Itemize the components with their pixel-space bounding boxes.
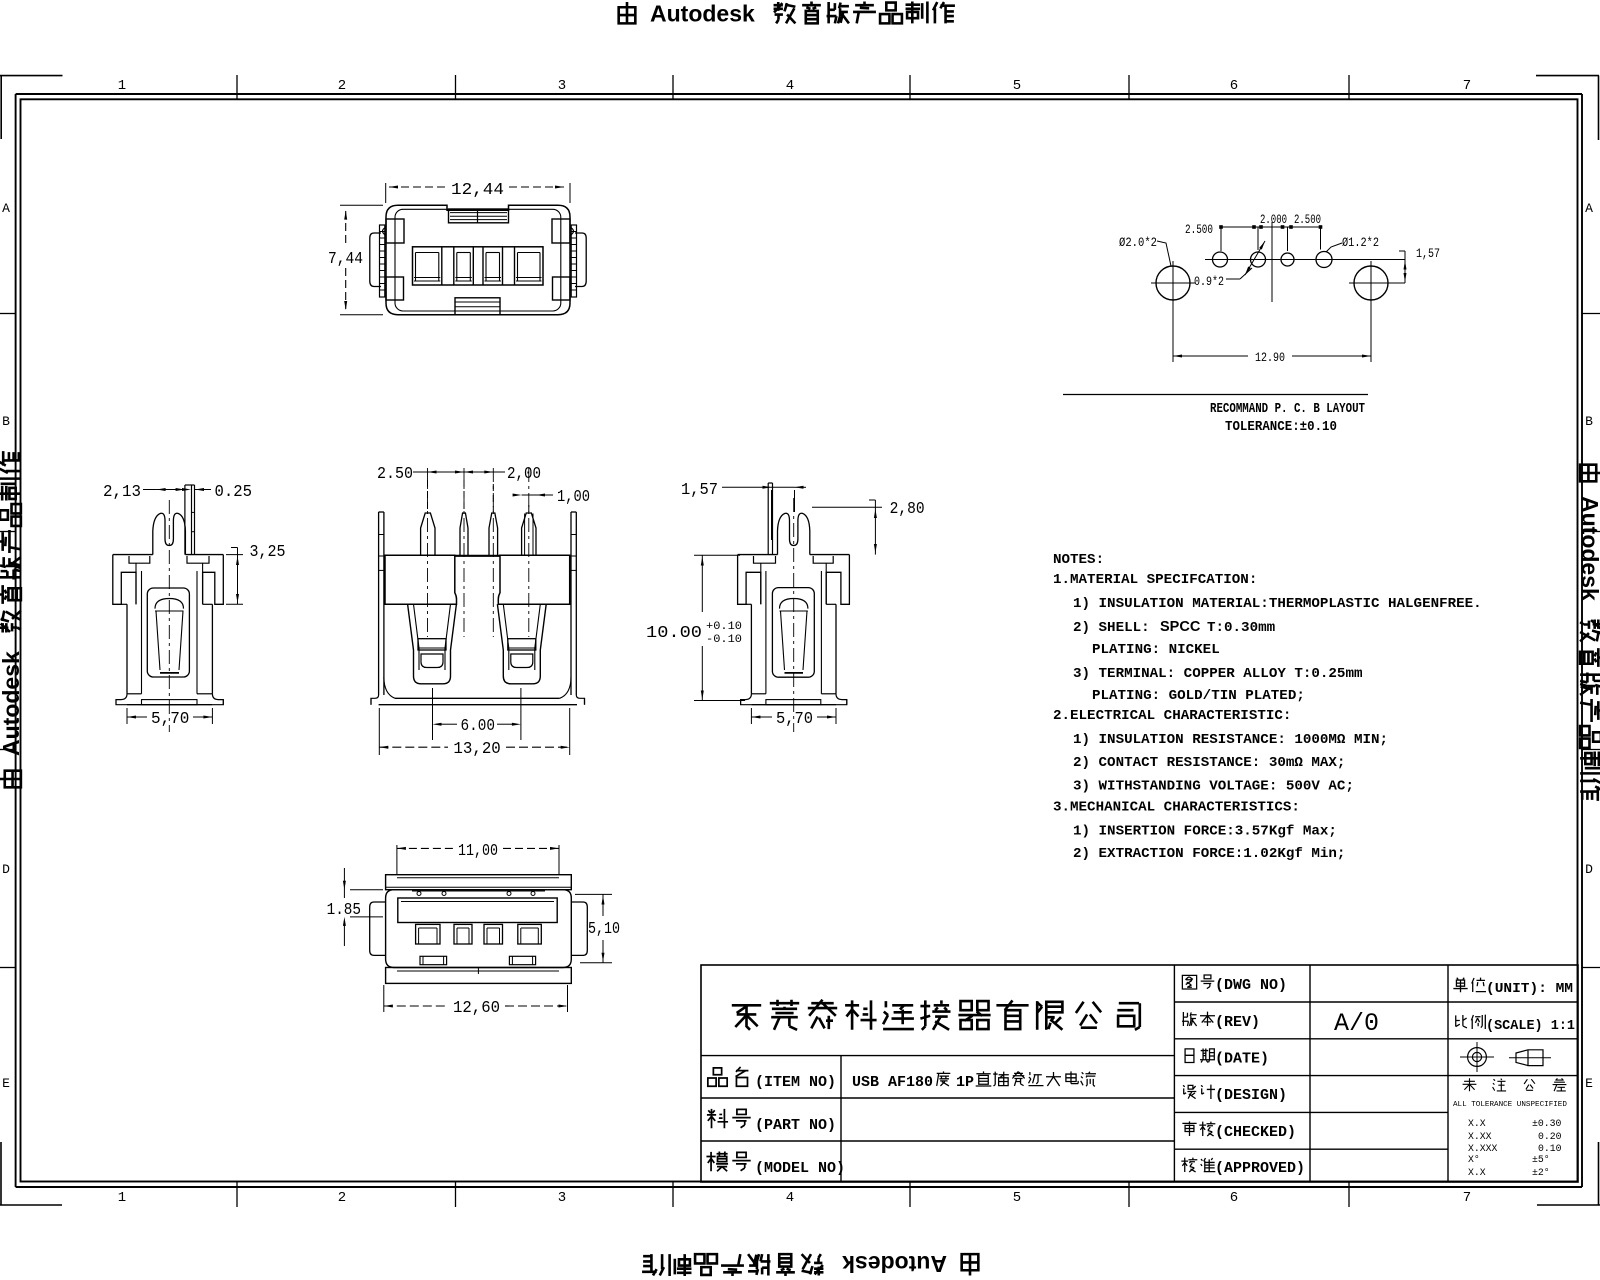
svg-text:1) INSULATION MATERIAL:THERMO: 1) INSULATION MATERIAL:THERMOPLASTIC HAL… bbox=[1073, 596, 1482, 612]
svg-text:11,00: 11,00 bbox=[458, 841, 498, 860]
svg-text:X.XX: X.XX bbox=[1468, 1131, 1492, 1142]
svg-text:D: D bbox=[2, 862, 10, 877]
svg-text:3: 3 bbox=[558, 78, 566, 94]
svg-text:-0.10: -0.10 bbox=[706, 634, 742, 646]
svg-text:3) TERMINAL: COPPER ALLOY T:0: 3) TERMINAL: COPPER ALLOY T:0.25mm bbox=[1073, 666, 1362, 682]
svg-text:1.85: 1.85 bbox=[327, 900, 361, 919]
svg-text:A: A bbox=[2, 201, 10, 216]
svg-text:T:0.30mm: T:0.30mm bbox=[1207, 620, 1275, 636]
svg-text:1,00: 1,00 bbox=[557, 487, 590, 506]
svg-text:2.ELECTRICAL CHARACTERISTIC:: 2.ELECTRICAL CHARACTERISTIC: bbox=[1053, 708, 1291, 724]
svg-text:3: 3 bbox=[558, 1190, 566, 1206]
svg-text:X.XXX: X.XXX bbox=[1468, 1143, 1498, 1154]
svg-text:1) INSERTION FORCE:3.57Kgf Ma: 1) INSERTION FORCE:3.57Kgf Max; bbox=[1073, 824, 1337, 840]
svg-text:2.500: 2.500 bbox=[1185, 222, 1213, 237]
svg-text:(DATE): (DATE) bbox=[1215, 1051, 1269, 1068]
svg-text:(APPROVED): (APPROVED) bbox=[1215, 1160, 1305, 1177]
svg-text:2: 2 bbox=[338, 78, 346, 94]
svg-text:1: 1 bbox=[118, 1190, 126, 1206]
svg-text:5: 5 bbox=[1013, 78, 1021, 94]
svg-text:2) EXTRACTION FORCE:1.02Kgf M: 2) EXTRACTION FORCE:1.02Kgf Min; bbox=[1073, 846, 1345, 862]
svg-text:Autodesk: Autodesk bbox=[650, 1, 755, 27]
svg-text:X.X: X.X bbox=[1468, 1118, 1486, 1129]
svg-text:(REV): (REV) bbox=[1215, 1014, 1260, 1031]
svg-text:1,57: 1,57 bbox=[681, 480, 718, 499]
svg-text:±5°: ±5° bbox=[1532, 1154, 1550, 1165]
svg-text:3) WITHSTANDING VOLTAGE: 500V: 3) WITHSTANDING VOLTAGE: 500V AC; bbox=[1073, 779, 1354, 795]
svg-text:USB AF180: USB AF180 bbox=[852, 1074, 933, 1091]
svg-text:A/0: A/0 bbox=[1334, 1009, 1379, 1038]
svg-text:E: E bbox=[2, 1076, 10, 1091]
svg-text:12,44: 12,44 bbox=[451, 180, 504, 199]
svg-text:PLATING: GOLD/TIN PLATED;: PLATING: GOLD/TIN PLATED; bbox=[1092, 688, 1305, 704]
svg-text:B: B bbox=[2, 414, 10, 429]
svg-text:0.25: 0.25 bbox=[215, 482, 253, 501]
svg-text:12.90: 12.90 bbox=[1255, 350, 1285, 365]
svg-text:1,57: 1,57 bbox=[1416, 246, 1440, 261]
svg-text:Autodesk: Autodesk bbox=[842, 1251, 947, 1277]
svg-text:2) SHELL:: 2) SHELL: bbox=[1073, 620, 1150, 636]
svg-text:E: E bbox=[1585, 1076, 1593, 1091]
svg-text:(PART NO): (PART NO) bbox=[755, 1117, 836, 1134]
svg-text:7: 7 bbox=[1463, 1190, 1471, 1206]
svg-text:1: 1 bbox=[118, 78, 126, 94]
svg-text:12,60: 12,60 bbox=[453, 998, 500, 1017]
svg-text:4: 4 bbox=[786, 78, 794, 94]
svg-text:(DESIGN): (DESIGN) bbox=[1215, 1087, 1287, 1104]
svg-text:2: 2 bbox=[338, 1190, 346, 1206]
svg-text:X.X: X.X bbox=[1468, 1167, 1486, 1178]
svg-text:2.50: 2.50 bbox=[377, 464, 413, 483]
svg-text:10.00: 10.00 bbox=[646, 623, 702, 642]
svg-text:B: B bbox=[1585, 414, 1593, 429]
svg-text:5,70: 5,70 bbox=[776, 709, 813, 728]
svg-text:(UNIT): MM: (UNIT): MM bbox=[1486, 981, 1573, 997]
svg-text:Ø1.2*2: Ø1.2*2 bbox=[1342, 235, 1379, 250]
svg-text:Autodesk: Autodesk bbox=[0, 651, 24, 756]
svg-text:2,13: 2,13 bbox=[103, 482, 141, 501]
svg-text:Autodesk: Autodesk bbox=[1577, 496, 1600, 601]
svg-text:5,10: 5,10 bbox=[588, 919, 620, 938]
svg-text:Ø2.0*2: Ø2.0*2 bbox=[1119, 235, 1157, 250]
svg-text:D: D bbox=[1585, 862, 1593, 877]
svg-text:2,00: 2,00 bbox=[507, 464, 541, 483]
svg-text:A: A bbox=[1585, 201, 1593, 216]
svg-text:(DWG NO): (DWG NO) bbox=[1215, 977, 1287, 994]
svg-text:RECOMMAND P. C. B LAYOUT: RECOMMAND P. C. B LAYOUT bbox=[1210, 402, 1365, 417]
svg-text:(ITEM NO): (ITEM NO) bbox=[755, 1074, 836, 1091]
svg-text:1P: 1P bbox=[956, 1074, 974, 1091]
svg-text:ALL TOLERANCE UNSPECIFIED: ALL TOLERANCE UNSPECIFIED bbox=[1453, 1101, 1567, 1109]
svg-text:0.9*2: 0.9*2 bbox=[1194, 274, 1224, 289]
svg-text:3.MECHANICAL CHARACTERISTICS:: 3.MECHANICAL CHARACTERISTICS: bbox=[1053, 800, 1300, 816]
svg-text:(MODEL NO): (MODEL NO) bbox=[755, 1160, 845, 1177]
svg-text:±0.30: ±0.30 bbox=[1532, 1118, 1562, 1129]
svg-text:SPCC: SPCC bbox=[1160, 619, 1201, 635]
svg-text:13,20: 13,20 bbox=[453, 739, 500, 758]
svg-text:TOLERANCE:±0.10: TOLERANCE:±0.10 bbox=[1225, 420, 1337, 435]
svg-text:PLATING: NICKEL: PLATING: NICKEL bbox=[1092, 642, 1220, 658]
svg-text:2.500: 2.500 bbox=[1294, 212, 1321, 227]
svg-text:X°: X° bbox=[1468, 1154, 1480, 1165]
svg-text:6: 6 bbox=[1230, 78, 1238, 94]
svg-text:6.00: 6.00 bbox=[461, 716, 496, 735]
svg-text:1.MATERIAL SPECIFCATION:: 1.MATERIAL SPECIFCATION: bbox=[1053, 572, 1257, 588]
svg-text:±2°: ±2° bbox=[1532, 1167, 1550, 1178]
svg-text:(CHECKED): (CHECKED) bbox=[1215, 1124, 1296, 1141]
svg-text:6: 6 bbox=[1230, 1190, 1238, 1206]
svg-text:0.20: 0.20 bbox=[1538, 1131, 1562, 1142]
svg-text:0.10: 0.10 bbox=[1538, 1143, 1562, 1154]
svg-text:2) CONTACT RESISTANCE: 30mΩ M: 2) CONTACT RESISTANCE: 30mΩ MAX; bbox=[1073, 755, 1345, 771]
svg-text:NOTES:: NOTES: bbox=[1053, 552, 1104, 568]
svg-text:5,70: 5,70 bbox=[151, 709, 189, 728]
svg-text:4: 4 bbox=[786, 1190, 794, 1206]
svg-text:7,44: 7,44 bbox=[328, 249, 363, 268]
svg-text:3,25: 3,25 bbox=[250, 542, 286, 561]
svg-text:+0.10: +0.10 bbox=[706, 621, 742, 633]
svg-text:(SCALE) 1:1: (SCALE) 1:1 bbox=[1486, 1018, 1575, 1034]
svg-text:1) INSULATION RESISTANCE: 100: 1) INSULATION RESISTANCE: 1000MΩ MIN; bbox=[1073, 732, 1388, 748]
svg-text:7: 7 bbox=[1463, 78, 1471, 94]
svg-text:2.000: 2.000 bbox=[1260, 212, 1287, 227]
svg-text:2,80: 2,80 bbox=[890, 499, 925, 518]
svg-text:5: 5 bbox=[1013, 1190, 1021, 1206]
